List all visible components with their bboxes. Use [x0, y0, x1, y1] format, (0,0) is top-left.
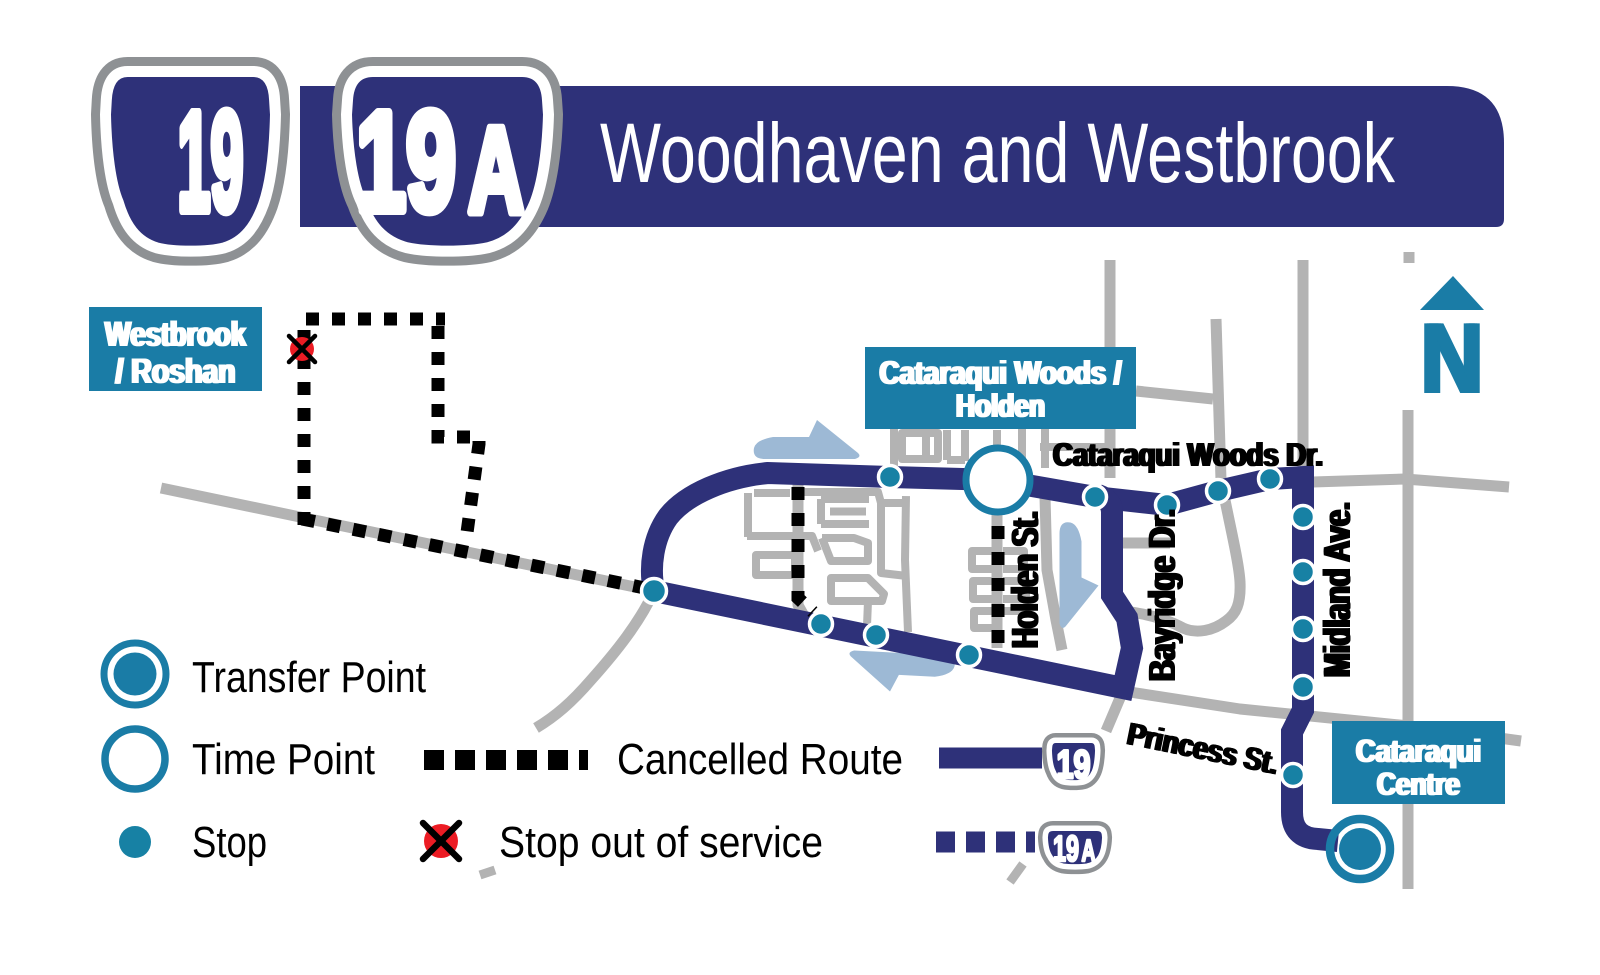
svg-text:Holden St.: Holden St. [1005, 511, 1047, 648]
svg-text:Cataraqui Woods Dr.: Cataraqui Woods Dr. [1053, 436, 1323, 473]
svg-text:Midland Ave.: Midland Ave. [1317, 502, 1359, 677]
svg-text:Cancelled Route: Cancelled Route [617, 735, 903, 784]
svg-text:Stop: Stop [192, 818, 267, 867]
svg-text:19: 19 [1057, 743, 1091, 787]
svg-text:Cataraqui: Cataraqui [1356, 733, 1481, 769]
svg-text:19: 19 [1053, 828, 1079, 869]
svg-text:A: A [1082, 833, 1096, 868]
svg-text:Bayridge Dr.: Bayridge Dr. [1142, 509, 1184, 681]
svg-text:Westbrook: Westbrook [105, 315, 246, 354]
svg-text:19: 19 [356, 82, 456, 240]
svg-text:19: 19 [178, 82, 244, 240]
svg-text:Woodhaven and Westbrook: Woodhaven and Westbrook [600, 106, 1396, 200]
svg-text:/ Roshan: / Roshan [116, 352, 236, 391]
svg-text:Time Point: Time Point [192, 735, 375, 784]
svg-text:Holden: Holden [956, 387, 1045, 424]
svg-text:A: A [468, 102, 524, 238]
svg-text:Centre: Centre [1377, 766, 1460, 802]
svg-text:Transfer Point: Transfer Point [192, 653, 426, 702]
svg-text:N: N [1421, 303, 1483, 415]
svg-text:Cataraqui Woods /: Cataraqui Woods / [880, 354, 1122, 391]
svg-text:Stop out of service: Stop out of service [499, 818, 823, 867]
